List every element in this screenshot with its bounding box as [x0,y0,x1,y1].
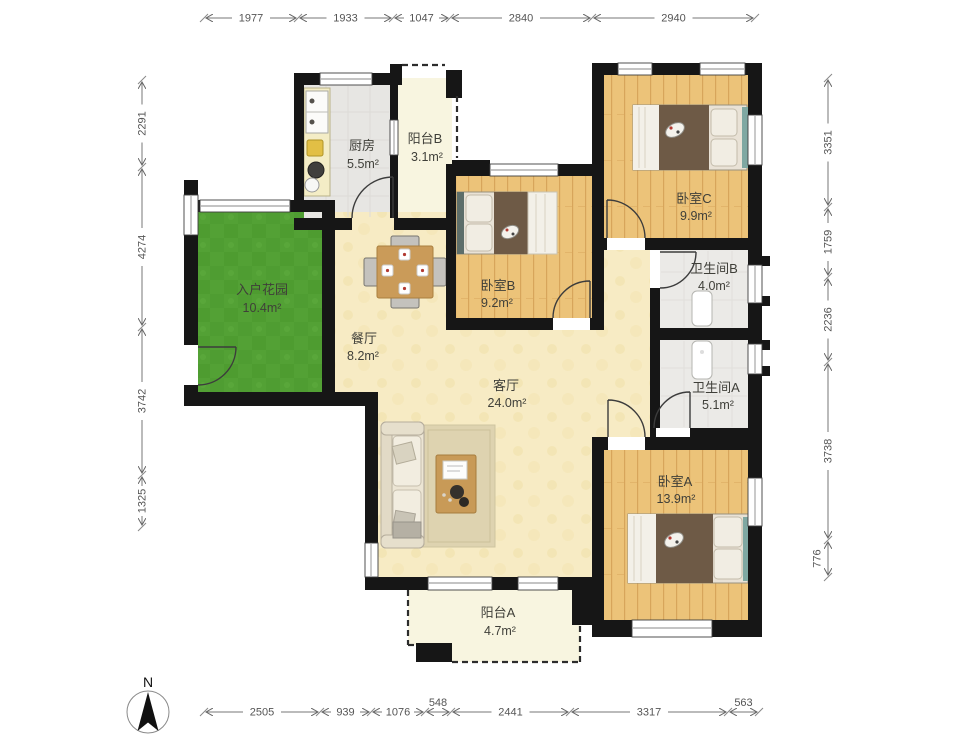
svg-text:厨房: 厨房 [349,138,375,153]
dim-label-left-1: 4274 [137,235,149,259]
coffee-table-icon [436,455,476,513]
window [618,63,652,75]
floor-plan-svg: lianjia [0,0,960,742]
dim-label-right-1: 1759 [823,230,835,254]
svg-text:24.0m²: 24.0m² [488,396,527,410]
dim-label-bottom-2: 1076 [386,707,410,719]
kettle-icon [305,178,319,192]
window [320,73,372,85]
toilet-icon [692,291,712,326]
window [518,577,558,590]
bed-a-icon [628,514,748,583]
living-room-set [381,422,495,548]
window [490,164,558,176]
kitchen-counter [304,88,330,196]
dim-label-top-0: 1977 [239,13,263,25]
svg-text:客厅: 客厅 [493,378,519,393]
svg-text:10.4m²: 10.4m² [243,301,282,315]
svg-text:4.7m²: 4.7m² [484,624,516,638]
window [748,115,762,165]
dims-right: 3351175922363738776 [812,74,835,581]
window [184,195,198,235]
svg-text:卫生间B: 卫生间B [690,261,738,276]
dim-label-bottom-0: 2505 [250,707,274,719]
sink-icon [307,140,323,156]
dims-left: 2291427437421325 [137,76,149,531]
dims-top: 19771933104728402940 [200,13,759,25]
north-label: N [143,674,153,690]
window [428,577,492,590]
window [365,543,378,577]
floor-plan-canvas: lianjia [0,0,960,742]
dim-label-right-3: 3738 [823,439,835,463]
svg-text:5.5m²: 5.5m² [347,157,379,171]
window [200,200,290,212]
dim-label-top-2: 1047 [409,13,433,25]
dim-label-right-2: 2236 [823,307,835,331]
svg-text:9.9m²: 9.9m² [680,209,712,223]
window [748,478,762,526]
dim-label-bottom-3: 548 [429,697,447,709]
dim-label-bottom-6: 563 [734,697,752,709]
cooktop-icon [308,162,324,178]
svg-text:餐厅: 餐厅 [351,331,377,346]
window [700,63,745,75]
svg-text:卧室B: 卧室B [481,278,516,293]
svg-text:3.1m²: 3.1m² [411,150,443,164]
svg-text:阳台B: 阳台B [408,131,443,146]
bed-b-icon [457,192,557,254]
dim-label-left-3: 1325 [137,489,149,513]
dim-label-top-1: 1933 [333,13,357,25]
svg-text:入户花园: 入户花园 [236,282,288,297]
bed-c-icon [633,105,748,170]
svg-text:5.1m²: 5.1m² [702,398,734,412]
svg-text:9.2m²: 9.2m² [481,296,513,310]
dim-label-bottom-4: 2441 [498,707,522,719]
svg-text:4.0m²: 4.0m² [698,279,730,293]
window [632,620,712,637]
svg-text:卧室C: 卧室C [676,191,711,206]
dim-label-top-3: 2840 [509,13,533,25]
dim-label-right-4: 776 [812,549,824,567]
dim-label-right-0: 3351 [823,130,835,154]
svg-text:13.9m²: 13.9m² [657,492,696,506]
svg-text:8.2m²: 8.2m² [347,349,379,363]
window [748,265,762,303]
dim-label-top-4: 2940 [661,13,685,25]
dims-bottom: 2505939107654824413317563 [200,697,763,719]
dim-label-left-0: 2291 [137,111,149,135]
dim-label-bottom-1: 939 [336,707,354,719]
dim-label-left-2: 3742 [137,389,149,413]
toilet-icon [692,341,712,379]
window [748,344,762,374]
compass: N [127,674,169,733]
svg-text:卫生间A: 卫生间A [692,380,740,395]
sofa-icon [381,422,424,548]
window [390,120,398,155]
svg-text:卧室A: 卧室A [658,474,693,489]
dim-label-bottom-5: 3317 [637,707,661,719]
svg-text:阳台A: 阳台A [481,605,516,620]
